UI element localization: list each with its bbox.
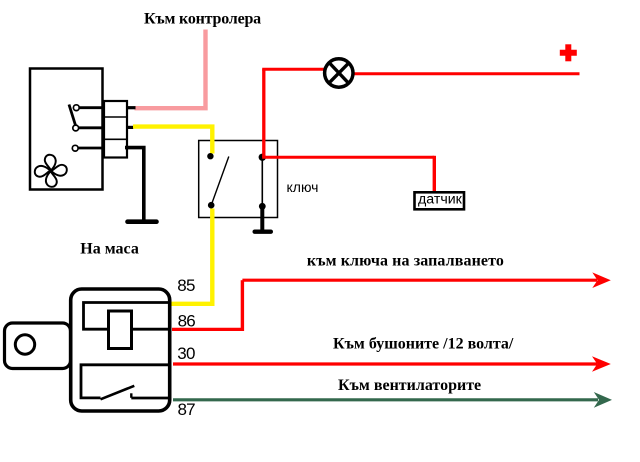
svg-text:86: 86 [178,312,196,331]
svg-text:към ключа на запалването: към ключа на запалването [307,253,504,270]
svg-text:Към вентилаторите: Към вентилаторите [338,377,481,394]
svg-text:30: 30 [177,344,195,363]
svg-text:85: 85 [177,276,195,295]
svg-text:87: 87 [178,400,196,419]
svg-text:Към контролера: Към контролера [144,11,261,28]
svg-text:На маса: На маса [80,241,139,258]
svg-text:Към бушоните /12 волта/: Към бушоните /12 волта/ [333,336,514,353]
svg-text:ключ: ключ [287,179,319,195]
svg-text:датчик: датчик [418,192,463,208]
